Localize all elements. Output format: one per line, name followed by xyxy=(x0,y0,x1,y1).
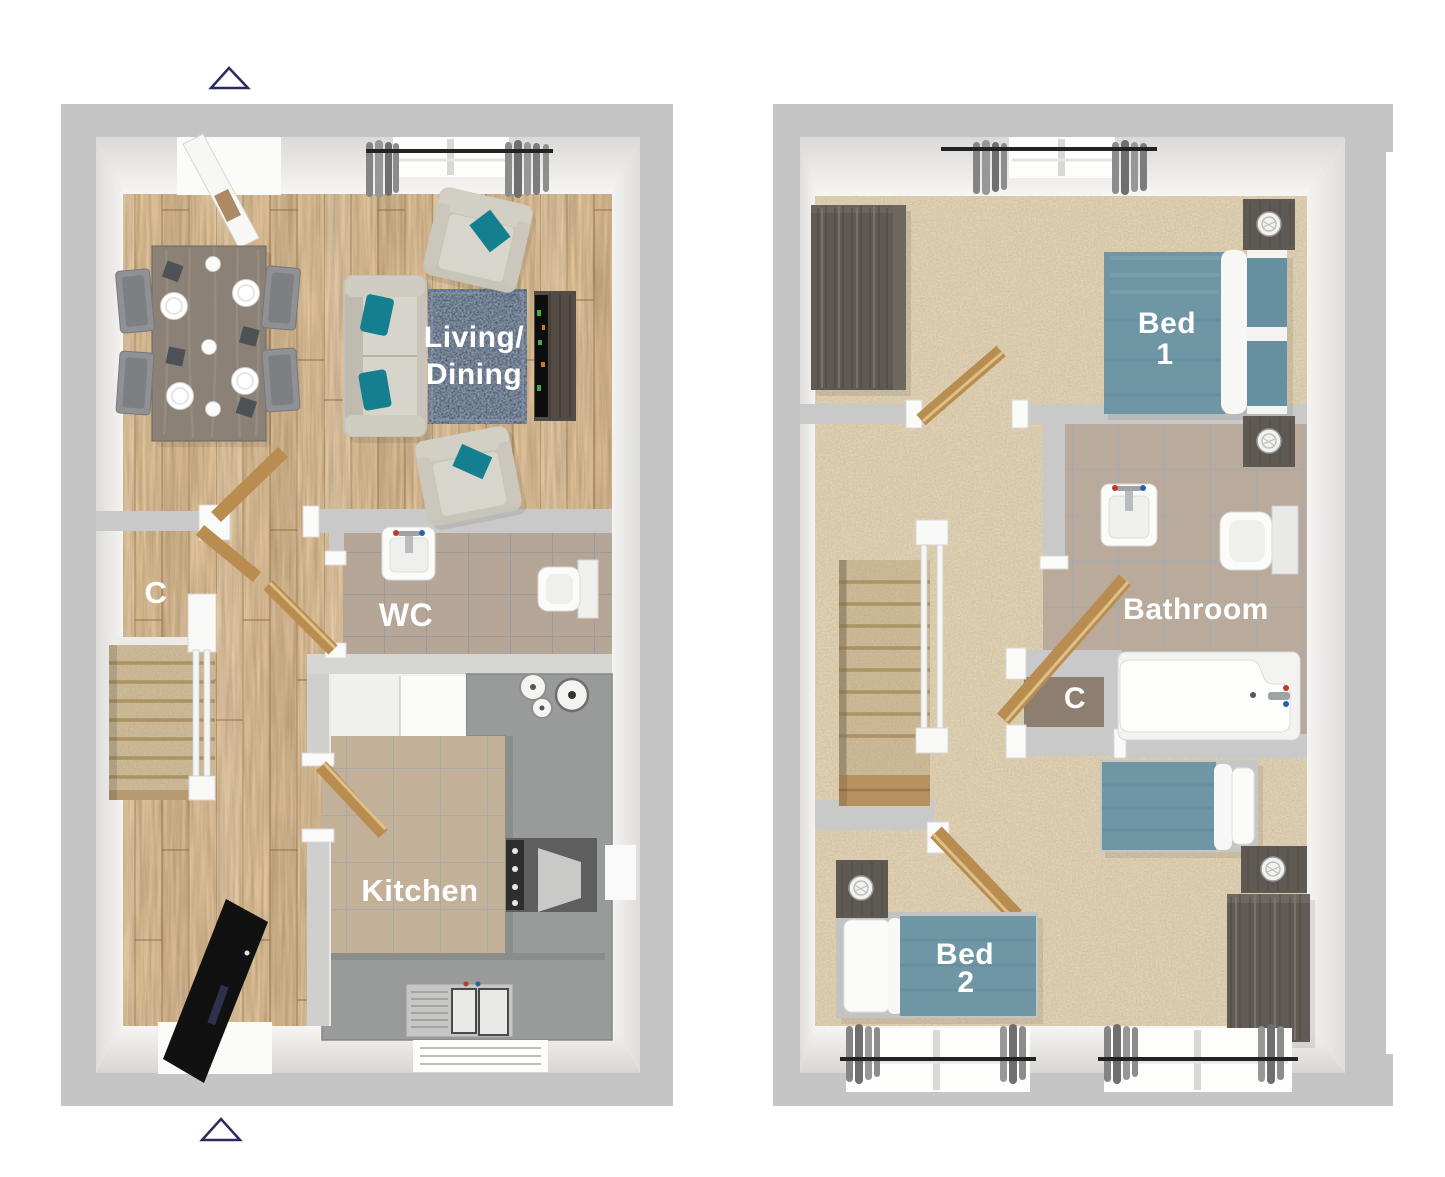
svg-text:2: 2 xyxy=(957,966,974,999)
svg-text:Living/: Living/ xyxy=(424,321,524,354)
svg-text:1: 1 xyxy=(1156,338,1173,371)
svg-text:Dining: Dining xyxy=(426,358,522,391)
svg-text:C: C xyxy=(1064,682,1086,715)
svg-text:WC: WC xyxy=(379,597,433,633)
svg-text:Bathroom: Bathroom xyxy=(1123,593,1269,626)
svg-text:C: C xyxy=(145,575,168,610)
svg-text:Bed: Bed xyxy=(1138,307,1196,340)
svg-text:Kitchen: Kitchen xyxy=(361,873,478,908)
